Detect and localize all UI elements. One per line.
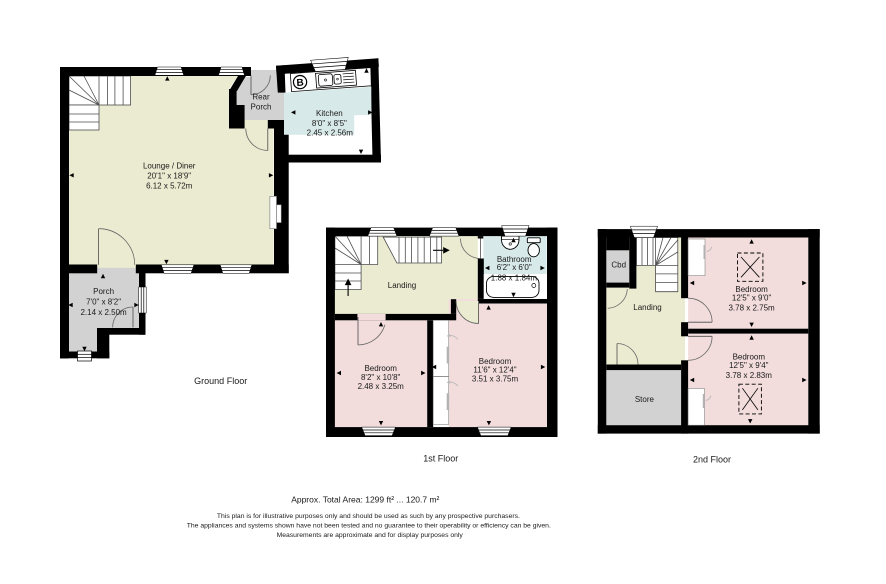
svg-text:1st Floor: 1st Floor bbox=[423, 454, 458, 464]
svg-text:Rear: Rear bbox=[252, 93, 270, 102]
svg-text:Measurements are approximate a: Measurements are approximate and for dis… bbox=[277, 532, 464, 539]
svg-text:1.88 x 1.84m: 1.88 x 1.84m bbox=[491, 273, 538, 282]
svg-text:Porch: Porch bbox=[93, 287, 114, 296]
svg-text:6'2" x 6'0": 6'2" x 6'0" bbox=[497, 263, 532, 272]
svg-text:Lounge / Diner: Lounge / Diner bbox=[143, 162, 196, 171]
svg-text:20'1" x 18'9": 20'1" x 18'9" bbox=[147, 172, 191, 181]
svg-text:7'0" x 8'2": 7'0" x 8'2" bbox=[86, 298, 121, 307]
svg-text:Porch: Porch bbox=[251, 102, 272, 111]
svg-text:8'2" x 10'8": 8'2" x 10'8" bbox=[361, 373, 401, 382]
svg-text:12'5" x 9'0": 12'5" x 9'0" bbox=[732, 293, 772, 302]
svg-text:B: B bbox=[296, 77, 304, 89]
svg-text:2nd Floor: 2nd Floor bbox=[693, 455, 731, 465]
svg-text:Bedroom: Bedroom bbox=[479, 357, 512, 366]
svg-text:3.78 x 2.83m: 3.78 x 2.83m bbox=[726, 371, 773, 380]
svg-text:Landing: Landing bbox=[633, 303, 661, 312]
svg-text:8'0" x 8'5": 8'0" x 8'5" bbox=[312, 119, 347, 128]
svg-text:12'5" x 9'4": 12'5" x 9'4" bbox=[729, 361, 769, 370]
svg-text:11'6" x 12'4": 11'6" x 12'4" bbox=[473, 366, 516, 375]
svg-text:3.78 x 2.75m: 3.78 x 2.75m bbox=[728, 303, 775, 312]
svg-text:2.14 x 2.50m: 2.14 x 2.50m bbox=[80, 308, 127, 317]
svg-text:Ground Floor: Ground Floor bbox=[194, 376, 247, 386]
svg-text:2.45 x 2.56m: 2.45 x 2.56m bbox=[307, 129, 354, 138]
svg-text:Kitchen: Kitchen bbox=[316, 109, 343, 118]
svg-text:2.48 x 3.25m: 2.48 x 3.25m bbox=[358, 382, 405, 391]
svg-text:The appliances and systems sho: The appliances and systems shown have no… bbox=[187, 522, 551, 529]
svg-text:Store: Store bbox=[635, 395, 655, 404]
svg-text:Landing: Landing bbox=[388, 281, 416, 290]
svg-text:Bedroom: Bedroom bbox=[364, 364, 397, 373]
svg-text:3.51 x 3.75m: 3.51 x 3.75m bbox=[472, 375, 519, 384]
svg-text:This plan is for illustrative: This plan is for illustrative purposes o… bbox=[217, 513, 520, 520]
svg-text:Approx. Total Area: 1299 ft² .: Approx. Total Area: 1299 ft² ... 120.7 m… bbox=[291, 495, 439, 505]
svg-text:Cbd: Cbd bbox=[611, 260, 626, 269]
svg-text:6.12 x 5.72m: 6.12 x 5.72m bbox=[146, 182, 193, 191]
